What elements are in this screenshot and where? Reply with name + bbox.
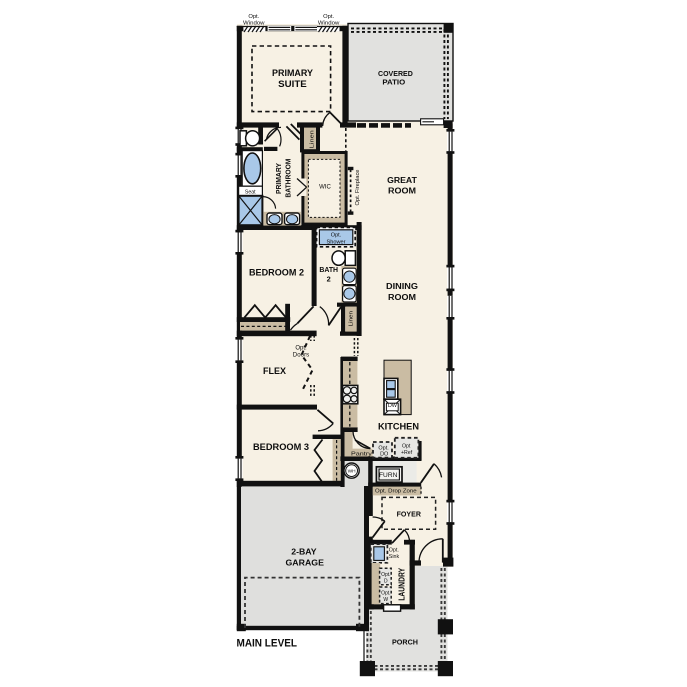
svg-text:SUITE: SUITE [278,79,307,89]
svg-text:D: D [384,578,388,584]
svg-text:W: W [383,597,388,603]
svg-text:Opt. Drop Zone: Opt. Drop Zone [375,488,417,494]
svg-text:Window: Window [318,20,340,26]
svg-text:PRIMARY: PRIMARY [274,163,283,194]
svg-text:Pantry: Pantry [351,451,372,457]
svg-text:DO: DO [380,452,389,458]
svg-text:GARAGE: GARAGE [286,558,325,567]
svg-text:2-BAY: 2-BAY [291,548,317,557]
svg-text:DW: DW [388,403,398,409]
svg-text:MAIN LEVEL: MAIN LEVEL [237,638,298,650]
svg-text:PORCH: PORCH [392,638,418,647]
svg-text:Opt.: Opt. [378,445,389,451]
svg-text:Window: Window [243,20,265,26]
svg-text:Shower: Shower [327,240,346,246]
svg-text:2: 2 [327,275,331,284]
svg-text:FOYER: FOYER [397,510,422,519]
svg-text:BEDROOM 3: BEDROOM 3 [253,442,309,452]
svg-text:WH: WH [348,469,357,475]
svg-text:Opt.: Opt. [323,14,334,20]
svg-text:WIC: WIC [319,184,331,190]
svg-text:ROOM: ROOM [388,185,416,195]
svg-text:GREAT: GREAT [387,175,418,185]
svg-text:ROOM: ROOM [388,292,416,302]
svg-text:BATH: BATH [319,265,338,274]
svg-text:Sink: Sink [389,554,400,560]
svg-text:Seat: Seat [245,189,256,195]
svg-text:Opt.: Opt. [389,547,399,553]
svg-text:+Ref: +Ref [401,450,413,456]
svg-text:Opt.: Opt. [381,572,390,578]
svg-text:Opt.: Opt. [331,233,342,239]
svg-text:BATHROOM: BATHROOM [283,159,292,198]
svg-text:Opt.: Opt. [248,14,259,20]
svg-text:LAUNDRY: LAUNDRY [397,567,406,601]
svg-text:KITCHEN: KITCHEN [378,421,419,431]
svg-text:FURN: FURN [379,473,397,479]
svg-text:Doors: Doors [293,353,309,359]
svg-text:DINING: DINING [386,281,418,291]
svg-text:Opt.: Opt. [381,591,390,597]
svg-text:Linen: Linen [309,130,315,148]
svg-text:Opt.: Opt. [295,346,307,352]
svg-text:BEDROOM 2: BEDROOM 2 [249,268,304,278]
svg-text:PATIO: PATIO [382,78,405,87]
svg-text:FLEX: FLEX [263,366,286,376]
svg-text:Opt: Opt [402,444,411,450]
svg-text:PRIMARY: PRIMARY [272,68,313,78]
svg-text:Linen: Linen [349,311,355,327]
svg-text:Opt. Fireplace: Opt. Fireplace [355,170,361,206]
